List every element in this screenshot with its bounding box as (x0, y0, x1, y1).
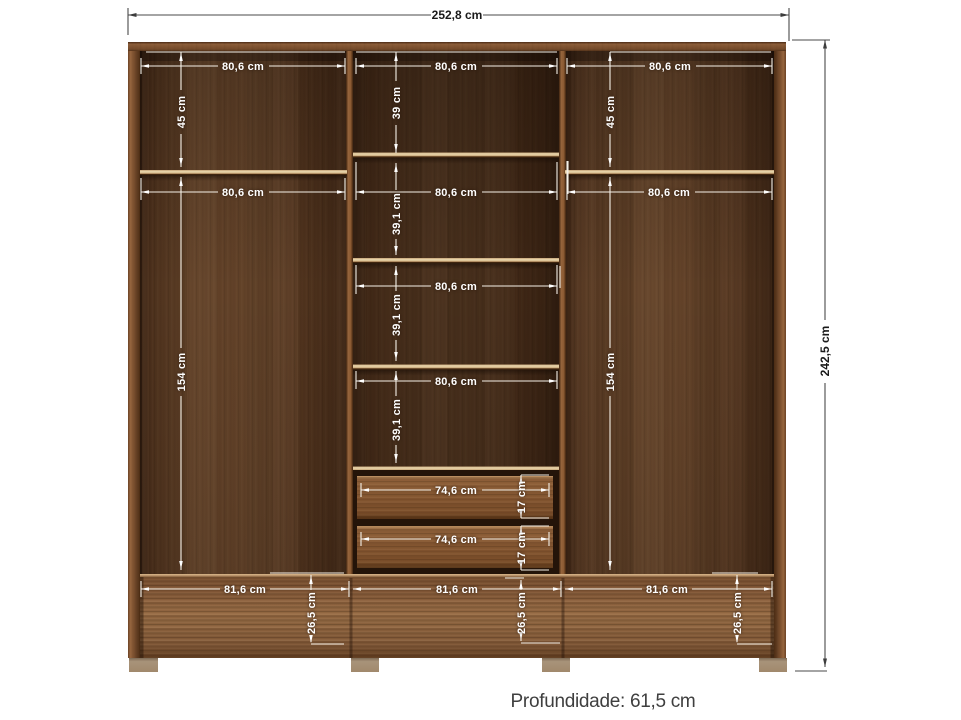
svg-text:80,6 cm: 80,6 cm (222, 61, 264, 73)
svg-text:74,6 cm: 74,6 cm (435, 534, 477, 546)
svg-text:154 cm: 154 cm (605, 353, 617, 392)
svg-text:154 cm: 154 cm (176, 353, 188, 392)
svg-text:39 cm: 39 cm (391, 87, 403, 119)
svg-text:80,6 cm: 80,6 cm (435, 187, 477, 199)
svg-text:242,5 cm: 242,5 cm (818, 326, 832, 377)
svg-text:74,6 cm: 74,6 cm (435, 485, 477, 497)
svg-text:26,5 cm: 26,5 cm (516, 592, 528, 634)
svg-text:17 cm: 17 cm (516, 481, 528, 513)
svg-text:80,6 cm: 80,6 cm (435, 61, 477, 73)
svg-text:80,6 cm: 80,6 cm (435, 376, 477, 388)
svg-text:26,5 cm: 26,5 cm (732, 592, 744, 634)
svg-text:80,6 cm: 80,6 cm (435, 281, 477, 293)
svg-text:81,6 cm: 81,6 cm (224, 584, 266, 596)
svg-text:39,1 cm: 39,1 cm (391, 399, 403, 441)
svg-text:81,6 cm: 81,6 cm (436, 584, 478, 596)
svg-text:80,6 cm: 80,6 cm (649, 61, 691, 73)
svg-text:17 cm: 17 cm (516, 532, 528, 564)
svg-text:252,8 cm: 252,8 cm (432, 8, 483, 22)
svg-text:81,6 cm: 81,6 cm (646, 584, 688, 596)
svg-text:80,6 cm: 80,6 cm (648, 187, 690, 199)
svg-text:Profundidade: 61,5 cm: Profundidade: 61,5 cm (511, 691, 696, 712)
svg-text:45 cm: 45 cm (605, 96, 617, 128)
svg-text:39,1 cm: 39,1 cm (391, 193, 403, 235)
svg-text:26,5 cm: 26,5 cm (306, 592, 318, 634)
svg-text:45 cm: 45 cm (176, 96, 188, 128)
svg-text:80,6 cm: 80,6 cm (222, 187, 264, 199)
svg-text:39,1 cm: 39,1 cm (391, 294, 403, 336)
